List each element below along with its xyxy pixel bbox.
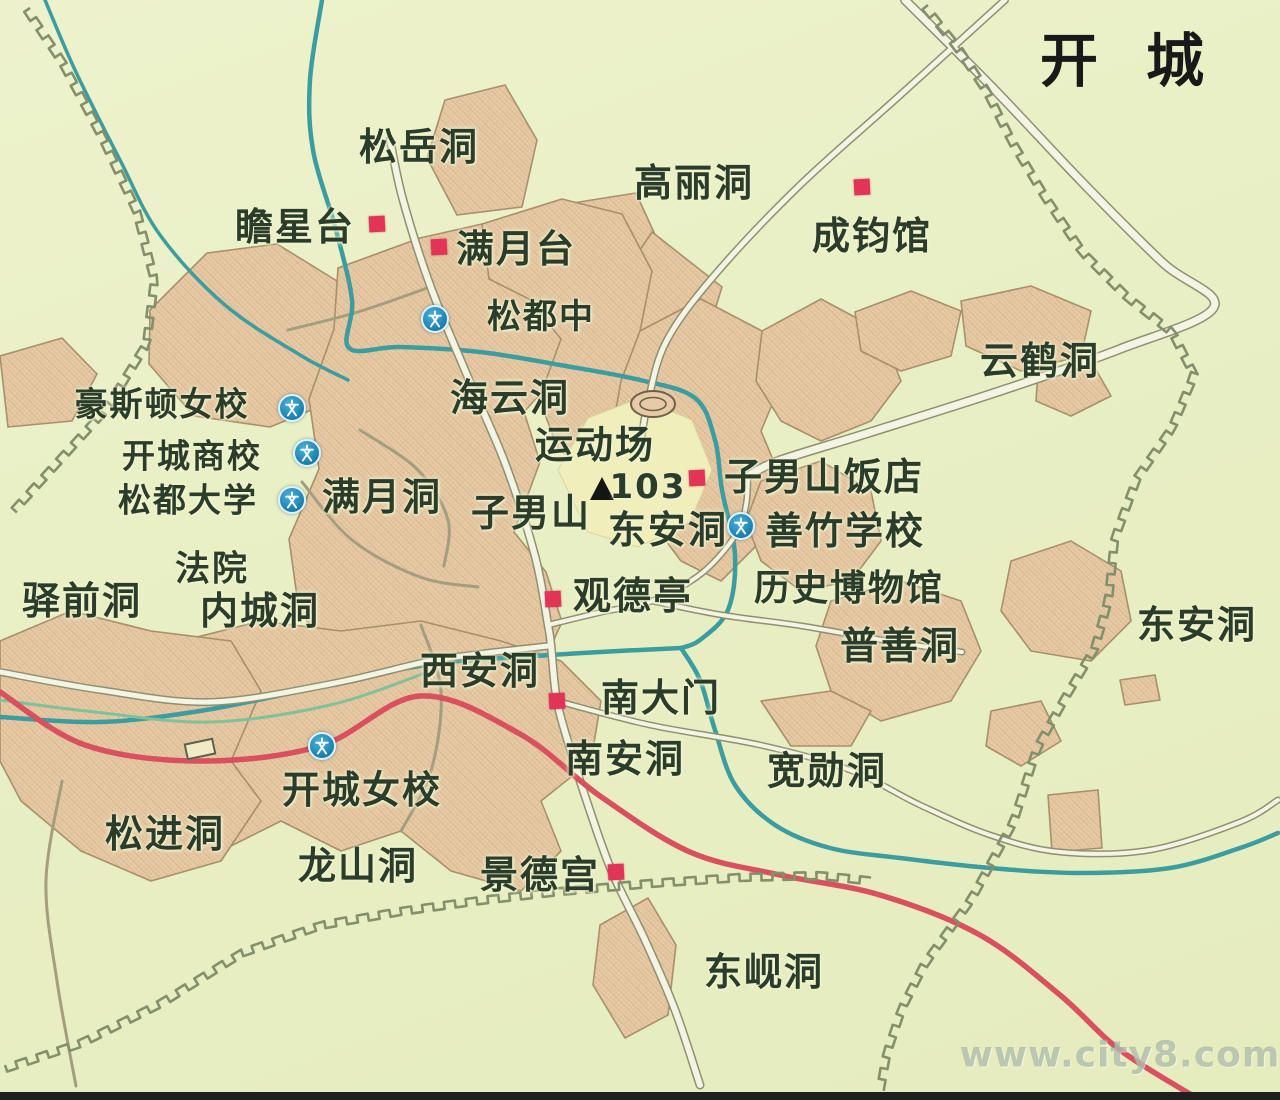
yiqian-dong-label: 驿前洞 (22, 582, 142, 620)
map-title: 开城 (1040, 32, 1252, 90)
wen-glyph (282, 490, 302, 510)
nanan-dong-label: 南安洞 (565, 740, 685, 778)
watermark-text: www.city8.com (960, 1035, 1280, 1076)
urban-area (1048, 790, 1102, 852)
dongan-dong-central-label: 东安洞 (608, 511, 728, 549)
wen-glyph (312, 736, 332, 756)
pushan-dong-label: 普善洞 (840, 627, 960, 665)
wen-glyph (297, 443, 317, 463)
songdu-middle-school-icon (421, 305, 449, 333)
peak-height-label: 103 (610, 470, 687, 504)
dongxian-dong-label: 东岘洞 (704, 953, 824, 991)
kaicheng-commercial-school-icon (293, 439, 321, 467)
neicheng-dong-label: 内城洞 (200, 592, 320, 630)
fayuan-court-label: 法院 (175, 553, 249, 588)
kaicheng-commercial-school-label: 开城商校 (122, 440, 262, 473)
guandeting-marker (545, 591, 562, 608)
zinanshan-hotel-marker (689, 470, 706, 487)
jingde-gong-label: 景德宫 (480, 856, 600, 894)
kaicheng-girls-school-icon (308, 732, 336, 760)
kaesong-map: 松岳洞高丽洞成钧馆瞻星台满月台松都中海云洞云鹤洞豪斯顿女校开城商校松都大学满月洞… (0, 0, 1280, 1100)
manyuetai-marker (431, 239, 448, 256)
yunhe-dong-label: 云鹤洞 (980, 342, 1100, 380)
wen-glyph (731, 516, 751, 536)
xian-dong-label: 西安洞 (420, 652, 540, 690)
chengjun-guan-label: 成钧馆 (812, 217, 932, 255)
image-edge-strip (0, 1092, 1280, 1100)
manyue-dong-label: 满月洞 (322, 478, 442, 516)
jingdegong-marker (608, 864, 625, 881)
songdu-university-label: 松都大学 (118, 484, 258, 517)
songdu-middle-school-label: 松都中 (487, 300, 595, 334)
urban-area (1001, 541, 1131, 661)
zhanxingtai-marker (369, 216, 386, 233)
haiyun-dong-label: 海云洞 (450, 379, 570, 417)
zhanxing-tai-label: 瞻星台 (235, 208, 355, 246)
wen-glyph (282, 398, 302, 418)
chengjunguan-marker (854, 179, 871, 196)
manyue-tai-label: 满月台 (456, 230, 576, 268)
zinanshan-hotel-label: 子男山饭店 (724, 458, 924, 496)
city-wall-path (879, 5, 1198, 1091)
urban-area (1120, 675, 1160, 705)
nandamen-south-gate-label: 南大门 (601, 679, 721, 717)
haosidun-girls-school-icon (278, 394, 306, 422)
yundongchang-stadium-label: 运动场 (535, 426, 655, 464)
shanzhu-school-label: 善竹学校 (765, 512, 925, 550)
dongan-dong-east-label: 东安洞 (1137, 606, 1257, 644)
songyue-dong-label: 松岳洞 (359, 128, 479, 166)
shanzhu-school-icon (727, 512, 755, 540)
haosidun-girls-school-label: 豪斯顿女校 (75, 388, 250, 421)
nandamen-marker (549, 693, 566, 710)
gaoli-dong-label: 高丽洞 (634, 164, 754, 202)
kuanxun-dong-label: 宽勋洞 (767, 752, 887, 790)
stadium-icon (631, 391, 675, 417)
zinan-shan-label: 子男山 (471, 494, 591, 532)
history-museum-label: 历史博物馆 (754, 571, 944, 607)
longshan-dong-label: 龙山洞 (298, 847, 418, 885)
guande-ting-label: 观德亭 (573, 577, 693, 615)
songdu-university-icon (278, 486, 306, 514)
songjin-dong-label: 松进洞 (105, 815, 225, 853)
kaicheng-girls-school-label: 开城女校 (282, 771, 442, 809)
wen-glyph (425, 309, 445, 329)
